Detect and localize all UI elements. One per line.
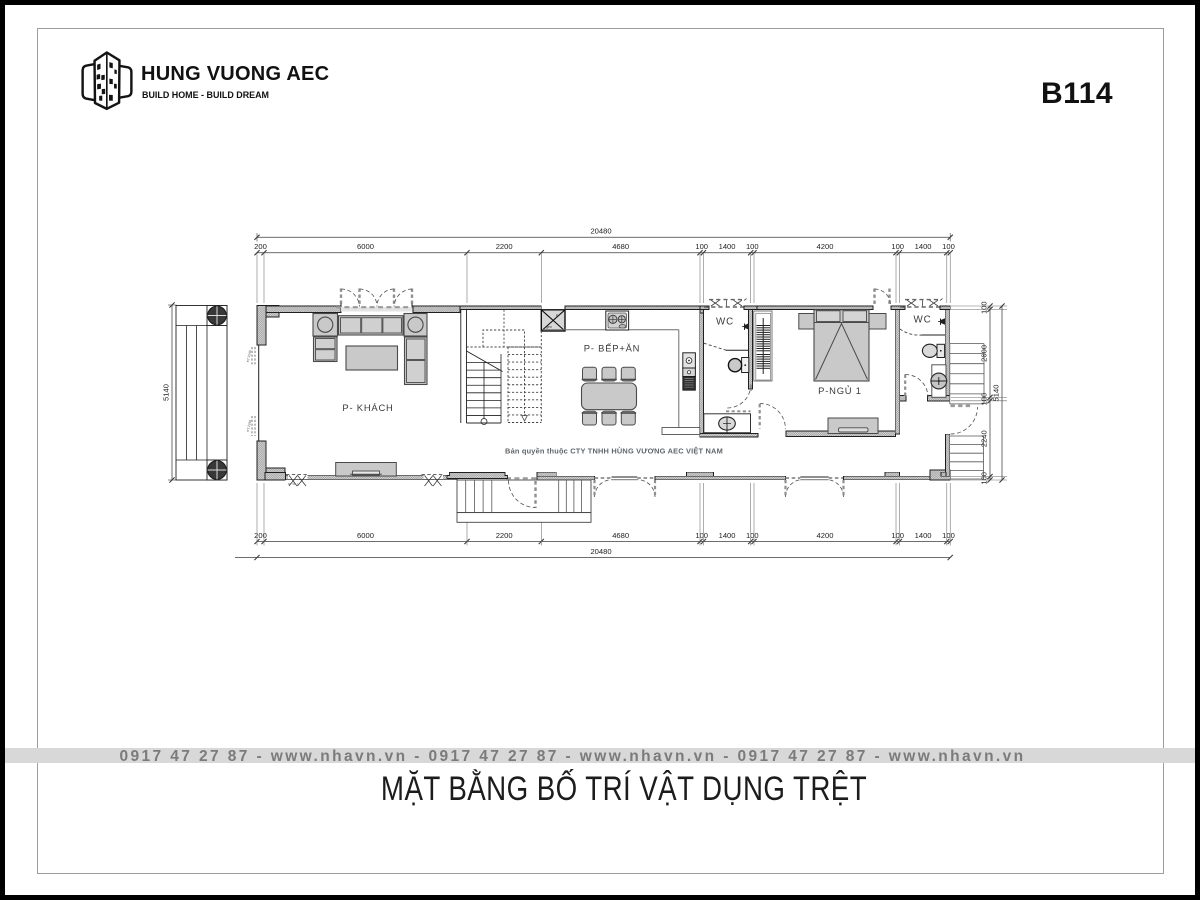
svg-text:4200: 4200	[817, 242, 834, 251]
svg-text:1400: 1400	[915, 242, 932, 251]
svg-text:2200: 2200	[496, 242, 513, 251]
svg-text:100: 100	[746, 531, 759, 540]
svg-text:5140: 5140	[162, 384, 171, 401]
svg-text:P- KHÁCH: P- KHÁCH	[342, 402, 393, 413]
svg-text:WC: WC	[914, 315, 932, 326]
svg-text:P-NGỦ 1: P-NGỦ 1	[818, 385, 862, 396]
svg-text:6000: 6000	[357, 531, 374, 540]
svg-text:1400: 1400	[915, 531, 932, 540]
svg-text:6000: 6000	[357, 242, 374, 251]
svg-text:100: 100	[746, 242, 759, 251]
svg-text:4200: 4200	[817, 531, 834, 540]
svg-text:1400: 1400	[719, 531, 736, 540]
svg-text:100: 100	[980, 301, 989, 314]
svg-text:2200: 2200	[496, 531, 513, 540]
svg-text:P- BẾP+ĂN: P- BẾP+ĂN	[584, 343, 640, 354]
svg-text:WC: WC	[716, 317, 734, 328]
svg-text:20480: 20480	[590, 547, 611, 556]
svg-text:100: 100	[942, 242, 955, 251]
svg-text:100: 100	[980, 472, 989, 485]
svg-text:100: 100	[891, 531, 904, 540]
svg-text:200: 200	[254, 242, 267, 251]
svg-text:5140: 5140	[992, 385, 1001, 402]
svg-text:100: 100	[891, 242, 904, 251]
svg-text:200: 200	[254, 531, 267, 540]
svg-text:1400: 1400	[719, 242, 736, 251]
svg-text:4680: 4680	[612, 531, 629, 540]
svg-text:gen: gen	[546, 325, 552, 329]
svg-text:KT 2240: KT 2240	[246, 350, 252, 363]
svg-text:KT 2240: KT 2240	[246, 419, 252, 432]
svg-text:100: 100	[942, 531, 955, 540]
svg-text:100: 100	[695, 531, 708, 540]
svg-text:4680: 4680	[612, 242, 629, 251]
svg-text:100: 100	[695, 242, 708, 251]
svg-text:20480: 20480	[590, 227, 611, 236]
svg-text:Bản quyền thuộc CTY TNHH HÙNG: Bản quyền thuộc CTY TNHH HÙNG VƯƠNG AEC …	[505, 447, 723, 456]
